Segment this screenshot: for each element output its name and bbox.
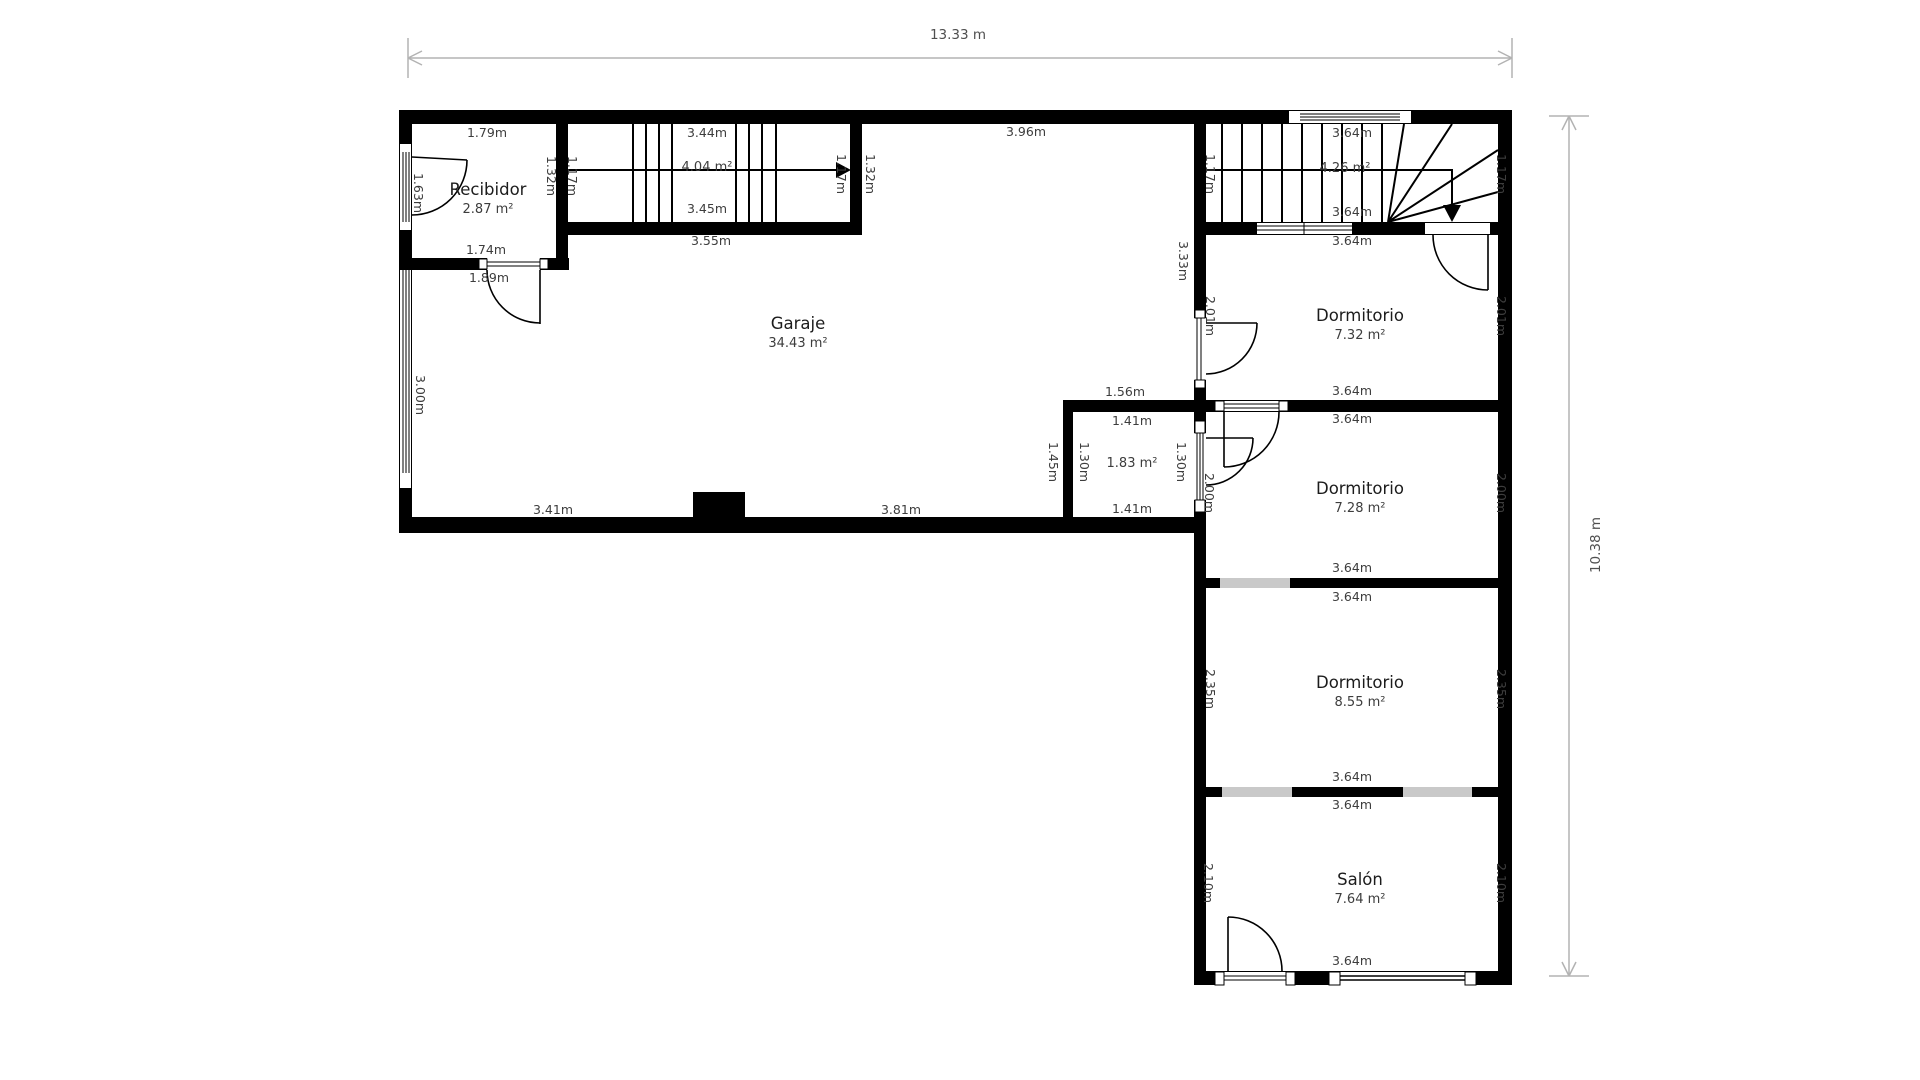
- dim-label: 3.81m: [881, 502, 921, 517]
- dim-label: 2.10m: [1494, 863, 1509, 903]
- dim-label: 3.64m: [1332, 589, 1372, 604]
- dim-label: 1.89m: [469, 270, 509, 285]
- dim-label: 1.41m: [1112, 501, 1152, 516]
- floor-plan: Recibidor 2.87 m² Garaje 34.43 m² 4.04 m…: [0, 0, 1920, 1080]
- room-area-stairs-right: 4.26 m²: [1320, 161, 1371, 176]
- room-name-garaje: Garaje: [771, 314, 826, 333]
- dim-label: 3.55m: [691, 233, 731, 248]
- door-arc-stairs-dormitorio1: [1433, 235, 1488, 290]
- dim-label: 1.56m: [1105, 384, 1145, 399]
- room-name-dormitorio2: Dormitorio: [1316, 479, 1404, 498]
- room-area-salon: 7.64 m²: [1335, 892, 1386, 907]
- window: [1340, 972, 1465, 985]
- dim-label: 2.00m: [1494, 473, 1509, 513]
- wall: [1063, 400, 1206, 412]
- wall: [850, 110, 862, 235]
- dim-label: 1.45m: [1046, 442, 1061, 482]
- dim-label: 2.01m: [1203, 296, 1218, 336]
- window-jamb: [1329, 972, 1340, 985]
- dim-label: 3.64m: [1332, 560, 1372, 575]
- dim-label: 1.17m: [1203, 154, 1218, 194]
- dim-overall-height: 10.38 m: [1588, 517, 1604, 573]
- dim-label: 1.32m: [863, 154, 878, 194]
- dim-label: 2.35m: [1203, 669, 1218, 709]
- room-name-recibidor: Recibidor: [450, 180, 527, 199]
- dim-label: 2.01m: [1494, 296, 1509, 336]
- dimension-line-top: [408, 38, 1512, 78]
- window-gray: [1222, 787, 1292, 797]
- dim-label: 1.17m: [834, 154, 849, 194]
- dim-label: 3.33m: [1176, 241, 1191, 281]
- dim-overall-width: 13.33 m: [930, 27, 986, 43]
- room-area-dormitorio3: 8.55 m²: [1335, 695, 1386, 710]
- dim-label: 3.96m: [1006, 124, 1046, 139]
- stair-arrow-down-icon: [1443, 205, 1461, 222]
- dim-label: 1.30m: [1077, 442, 1092, 482]
- dim-label: 1.17m: [565, 156, 580, 196]
- stair-winders-right: [1388, 124, 1498, 222]
- dim-label: 3.45m: [687, 201, 727, 216]
- door-arc-salon-entry: [1228, 917, 1282, 971]
- room-name-dormitorio3: Dormitorio: [1316, 673, 1404, 692]
- wall: [399, 517, 1206, 533]
- dim-label: 3.64m: [1332, 383, 1372, 398]
- dim-label: 3.41m: [533, 502, 573, 517]
- dimension-labels: 13.33 m 1.79m 3.44m 3.96m 3.64m 3.45m 3.…: [466, 27, 1372, 968]
- dim-label: 3.64m: [1332, 204, 1372, 219]
- dim-label: 3.00m: [413, 375, 428, 415]
- doors: [412, 157, 1488, 971]
- dim-label: 1.41m: [1112, 413, 1152, 428]
- window-jamb: [1400, 111, 1411, 123]
- door-jamb: [1215, 972, 1224, 985]
- dim-label: 2.35m: [1494, 669, 1509, 709]
- wall: [1063, 400, 1073, 527]
- door-jamb: [540, 259, 548, 269]
- dim-label: 1.32m: [544, 156, 559, 196]
- dim-label: 3.64m: [1332, 125, 1372, 140]
- dim-label: 3.64m: [1332, 233, 1372, 248]
- floor-plan-canvas: Recibidor 2.87 m² Garaje 34.43 m² 4.04 m…: [0, 0, 1920, 1080]
- dim-label: 1.63m: [411, 173, 426, 213]
- dim-label: 2.10m: [1201, 863, 1216, 903]
- dim-label: 3.64m: [1332, 797, 1372, 812]
- window-gray: [1220, 578, 1290, 588]
- dim-label: 3.64m: [1332, 953, 1372, 968]
- door-opening: [487, 258, 540, 270]
- room-name-dormitorio1: Dormitorio: [1316, 306, 1404, 325]
- window: [1224, 401, 1279, 411]
- room-area-stairs-left: 4.04 m²: [682, 160, 733, 175]
- dim-label: 3.64m: [1332, 411, 1372, 426]
- window-jamb: [400, 473, 411, 488]
- window-jamb: [1215, 401, 1224, 411]
- door-jamb: [479, 259, 487, 269]
- dim-label: 1.30m: [1174, 442, 1189, 482]
- room-area-recibidor: 2.87 m²: [463, 202, 514, 217]
- door-opening: [1224, 972, 1286, 985]
- dim-label: 3.64m: [1332, 769, 1372, 784]
- window-jamb: [1289, 111, 1300, 123]
- dimension-lines: [408, 38, 1589, 976]
- window-jamb: [1195, 421, 1205, 433]
- room-area-garaje: 34.43 m²: [768, 336, 827, 351]
- room-area-dormitorio1: 7.32 m²: [1335, 328, 1386, 343]
- dim-label: 1.74m: [466, 242, 506, 257]
- pillar: [693, 492, 745, 533]
- door-opening: [1425, 223, 1490, 234]
- window-jamb: [400, 144, 411, 152]
- dim-label: 2.00m: [1202, 473, 1217, 513]
- window-jamb: [1465, 972, 1476, 985]
- dimension-line-right: [1549, 116, 1589, 976]
- dim-label: 1.79m: [467, 125, 507, 140]
- wall: [1498, 110, 1512, 985]
- door-jamb: [1286, 972, 1295, 985]
- window-jamb: [1279, 401, 1288, 411]
- dim-label: 1.17m: [1494, 154, 1509, 194]
- window-jamb: [400, 222, 411, 230]
- door-arc-dormitorio2-top: [1224, 412, 1279, 467]
- window-gray: [1403, 787, 1472, 797]
- room-area-dormitorio2: 7.28 m²: [1335, 501, 1386, 516]
- room-area-trastero: 1.83 m²: [1107, 456, 1158, 471]
- room-name-salon: Salón: [1337, 870, 1383, 889]
- door-jamb: [1195, 380, 1205, 388]
- dim-label: 3.44m: [687, 125, 727, 140]
- wall: [1194, 110, 1206, 971]
